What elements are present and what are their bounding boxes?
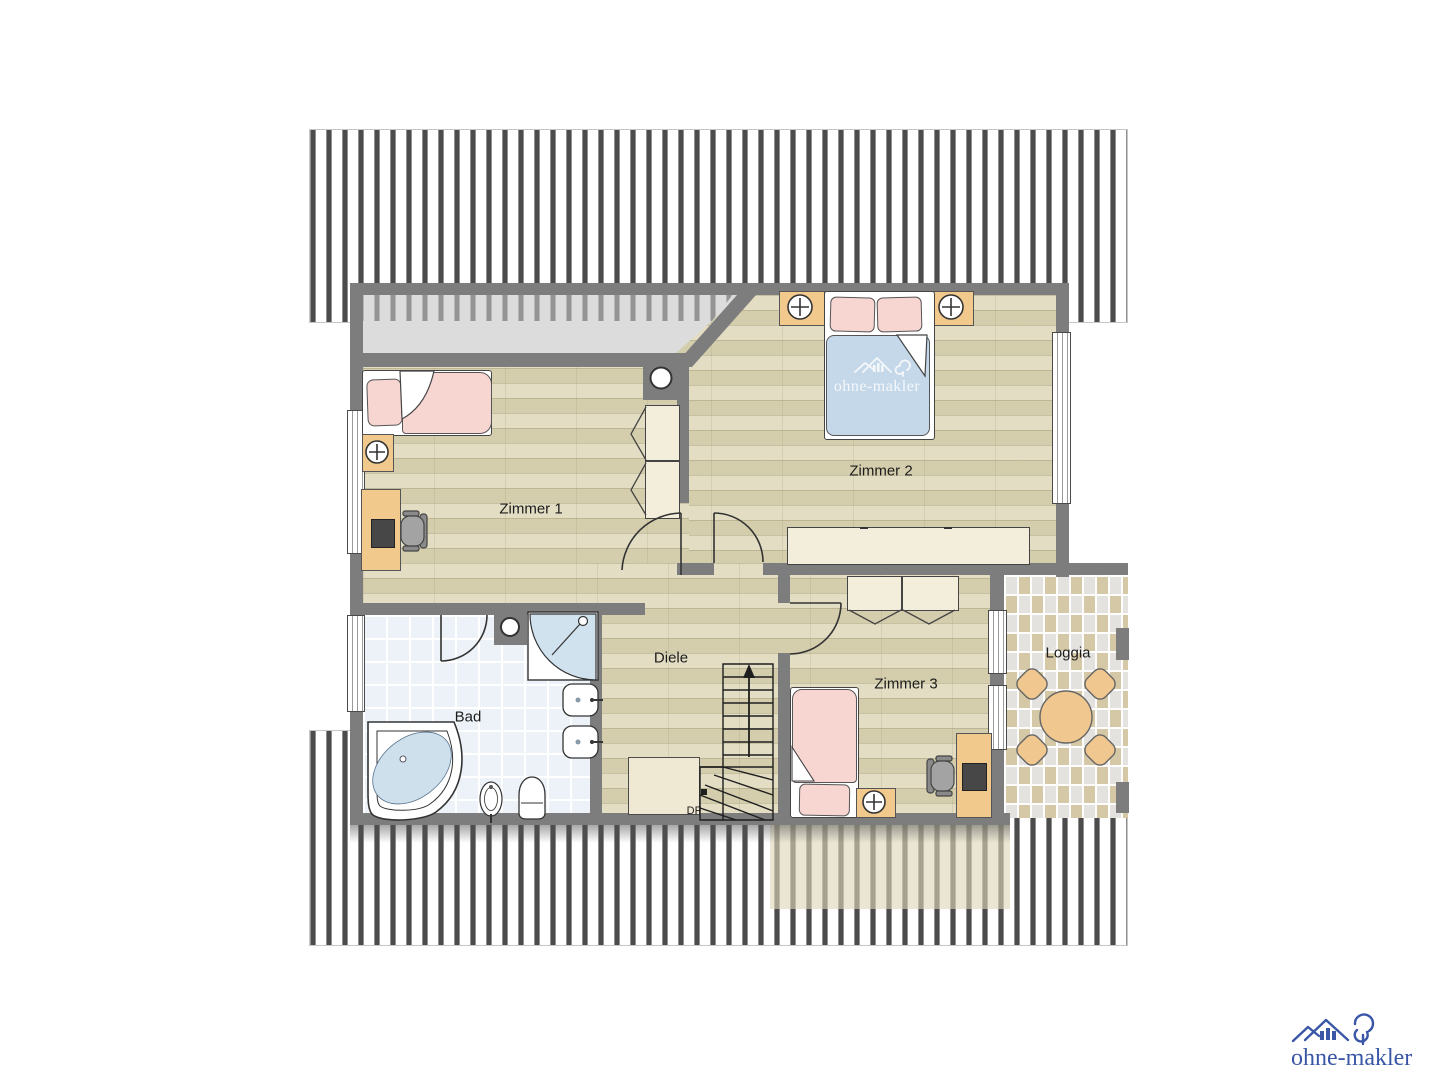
watermark-icon [817, 352, 937, 378]
label-diele: Diele [654, 650, 688, 667]
wall-loggia-right-a [1116, 628, 1129, 660]
wall-zimmer1-bad [350, 603, 645, 615]
label-zimmer2: Zimmer 2 [849, 463, 912, 480]
bed-pillow-zimmer2-left [830, 296, 876, 332]
label-bad: Bad [455, 709, 482, 726]
wall-zimmer3-left-b [778, 653, 790, 825]
brand-logo: ohne-makler [1283, 1008, 1423, 1072]
bed-pillow-zimmer1 [366, 378, 403, 426]
wall-zimmer3-left-a [778, 575, 790, 603]
wall-zimmer2-right-a [1056, 283, 1069, 332]
window-zimmer3-loggia-a [988, 610, 1007, 674]
label-loggia: Loggia [1045, 645, 1090, 662]
label-zimmer3: Zimmer 3 [874, 676, 937, 693]
wall-zimmer1-top [350, 353, 680, 367]
watermark: ohne-makler [817, 352, 937, 396]
bed-pillow-zimmer3 [799, 784, 851, 817]
window-bad-left [347, 615, 365, 712]
floor-bad [363, 615, 602, 825]
wardrobe-zimmer1 [645, 405, 680, 519]
sideboard-zimmer2 [787, 527, 1030, 565]
bed-duvet-zimmer1 [402, 372, 492, 434]
nightstand-zimmer3 [856, 788, 896, 818]
window-zimmer2-right [1052, 332, 1071, 504]
wall-loggia-right-b [1116, 782, 1129, 813]
floor-plan: Zimmer 1 Zimmer 2 Zimmer 3 Bad Diele Log… [0, 0, 1440, 1080]
monitor-zimmer1 [371, 519, 395, 548]
brand-logo-text: ohne-makler [1291, 1045, 1412, 1071]
watermark-text: ohne-makler [817, 378, 937, 396]
bed-pillow-zimmer2-right [877, 296, 923, 332]
wall-shadow [350, 825, 1010, 843]
floor-loggia [1004, 575, 1128, 818]
wardrobe-zimmer3 [847, 576, 959, 611]
bed-duvet-zimmer3 [792, 689, 857, 783]
wall-bad-right [590, 615, 602, 825]
label-df: DF [687, 805, 702, 817]
wall-zimmer3-right-a [990, 575, 1004, 610]
wall-zimmer2-right-b [1056, 502, 1069, 577]
wall-zimmer3-right-c [990, 748, 1004, 815]
wall-zimmer2-bottom-a [677, 563, 714, 575]
nightstand-zimmer1 [362, 434, 394, 472]
monitor-zimmer3 [962, 763, 987, 791]
label-zimmer1: Zimmer 1 [499, 501, 562, 518]
nightstand-zimmer2-left [779, 291, 825, 326]
wall-left-c [350, 710, 363, 825]
